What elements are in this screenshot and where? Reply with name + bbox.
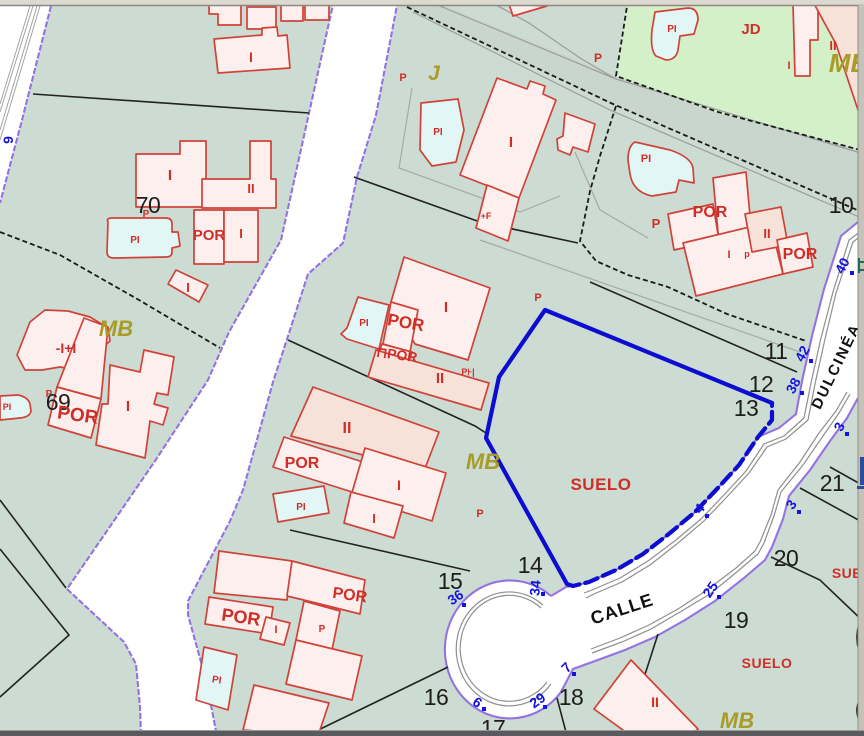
svg-text:14: 14	[518, 552, 543, 578]
svg-text:21: 21	[820, 470, 845, 496]
svg-text:II: II	[343, 420, 352, 437]
svg-text:I: I	[249, 49, 253, 65]
svg-text:16: 16	[424, 684, 449, 710]
svg-text:II: II	[651, 694, 659, 710]
svg-text:MB: MB	[466, 449, 500, 474]
svg-text:I: I	[168, 167, 172, 184]
svg-text:P: P	[46, 389, 53, 400]
svg-text:P: P	[399, 72, 406, 84]
svg-text:13: 13	[734, 395, 759, 421]
svg-text:SUELO: SUELO	[570, 475, 631, 494]
svg-text:PI: PI	[641, 153, 651, 165]
svg-text:PI: PI	[3, 402, 12, 412]
svg-text:P: P	[319, 624, 326, 635]
svg-text:P⊦|: P⊦|	[461, 367, 474, 377]
svg-text:-I+I: -I+I	[56, 340, 77, 356]
svg-text:I: I	[444, 299, 448, 316]
svg-text:12: 12	[749, 371, 774, 397]
svg-text:POR: POR	[693, 204, 728, 221]
svg-text:20: 20	[774, 545, 799, 571]
svg-text:II: II	[763, 226, 770, 241]
svg-text:PI: PI	[130, 235, 140, 246]
svg-text:I: I	[126, 398, 130, 415]
svg-text:+F: +F	[481, 211, 492, 221]
svg-text:I: I	[239, 226, 243, 241]
svg-text:p: p	[744, 249, 750, 259]
svg-text:II: II	[436, 370, 444, 387]
svg-text:18: 18	[559, 684, 584, 710]
svg-text:I: I	[372, 511, 376, 526]
svg-text:SUELO: SUELO	[742, 655, 793, 671]
svg-text:POR: POR	[783, 246, 818, 263]
svg-text:I: I	[787, 60, 790, 72]
svg-text:10: 10	[829, 192, 854, 218]
svg-text:J: J	[428, 62, 441, 85]
svg-text:I: I	[509, 134, 513, 151]
svg-text:I: I	[727, 249, 730, 261]
svg-text:I: I	[397, 477, 401, 493]
svg-text:PI: PI	[296, 502, 306, 513]
svg-text:P: P	[143, 209, 150, 220]
svg-text:JD: JD	[741, 21, 760, 38]
svg-text:PI: PI	[211, 674, 222, 686]
svg-text:P: P	[594, 51, 602, 65]
svg-text:PI: PI	[433, 127, 443, 138]
svg-text:POR: POR	[285, 455, 320, 472]
svg-text:POR: POR	[193, 227, 226, 244]
svg-text:P: P	[476, 508, 483, 520]
svg-text:9: 9	[0, 136, 16, 144]
svg-text:19: 19	[724, 607, 749, 633]
svg-text:I: I	[274, 624, 277, 636]
svg-text:P: P	[534, 292, 541, 304]
svg-text:PI: PI	[359, 318, 369, 329]
svg-text:P: P	[652, 216, 661, 231]
svg-text:II: II	[247, 181, 254, 196]
svg-text:I: I	[186, 280, 190, 295]
svg-text:PI: PI	[667, 24, 677, 35]
svg-text:MB: MB	[720, 708, 754, 733]
svg-text:11: 11	[765, 338, 788, 364]
svg-text:MB: MB	[99, 316, 133, 341]
